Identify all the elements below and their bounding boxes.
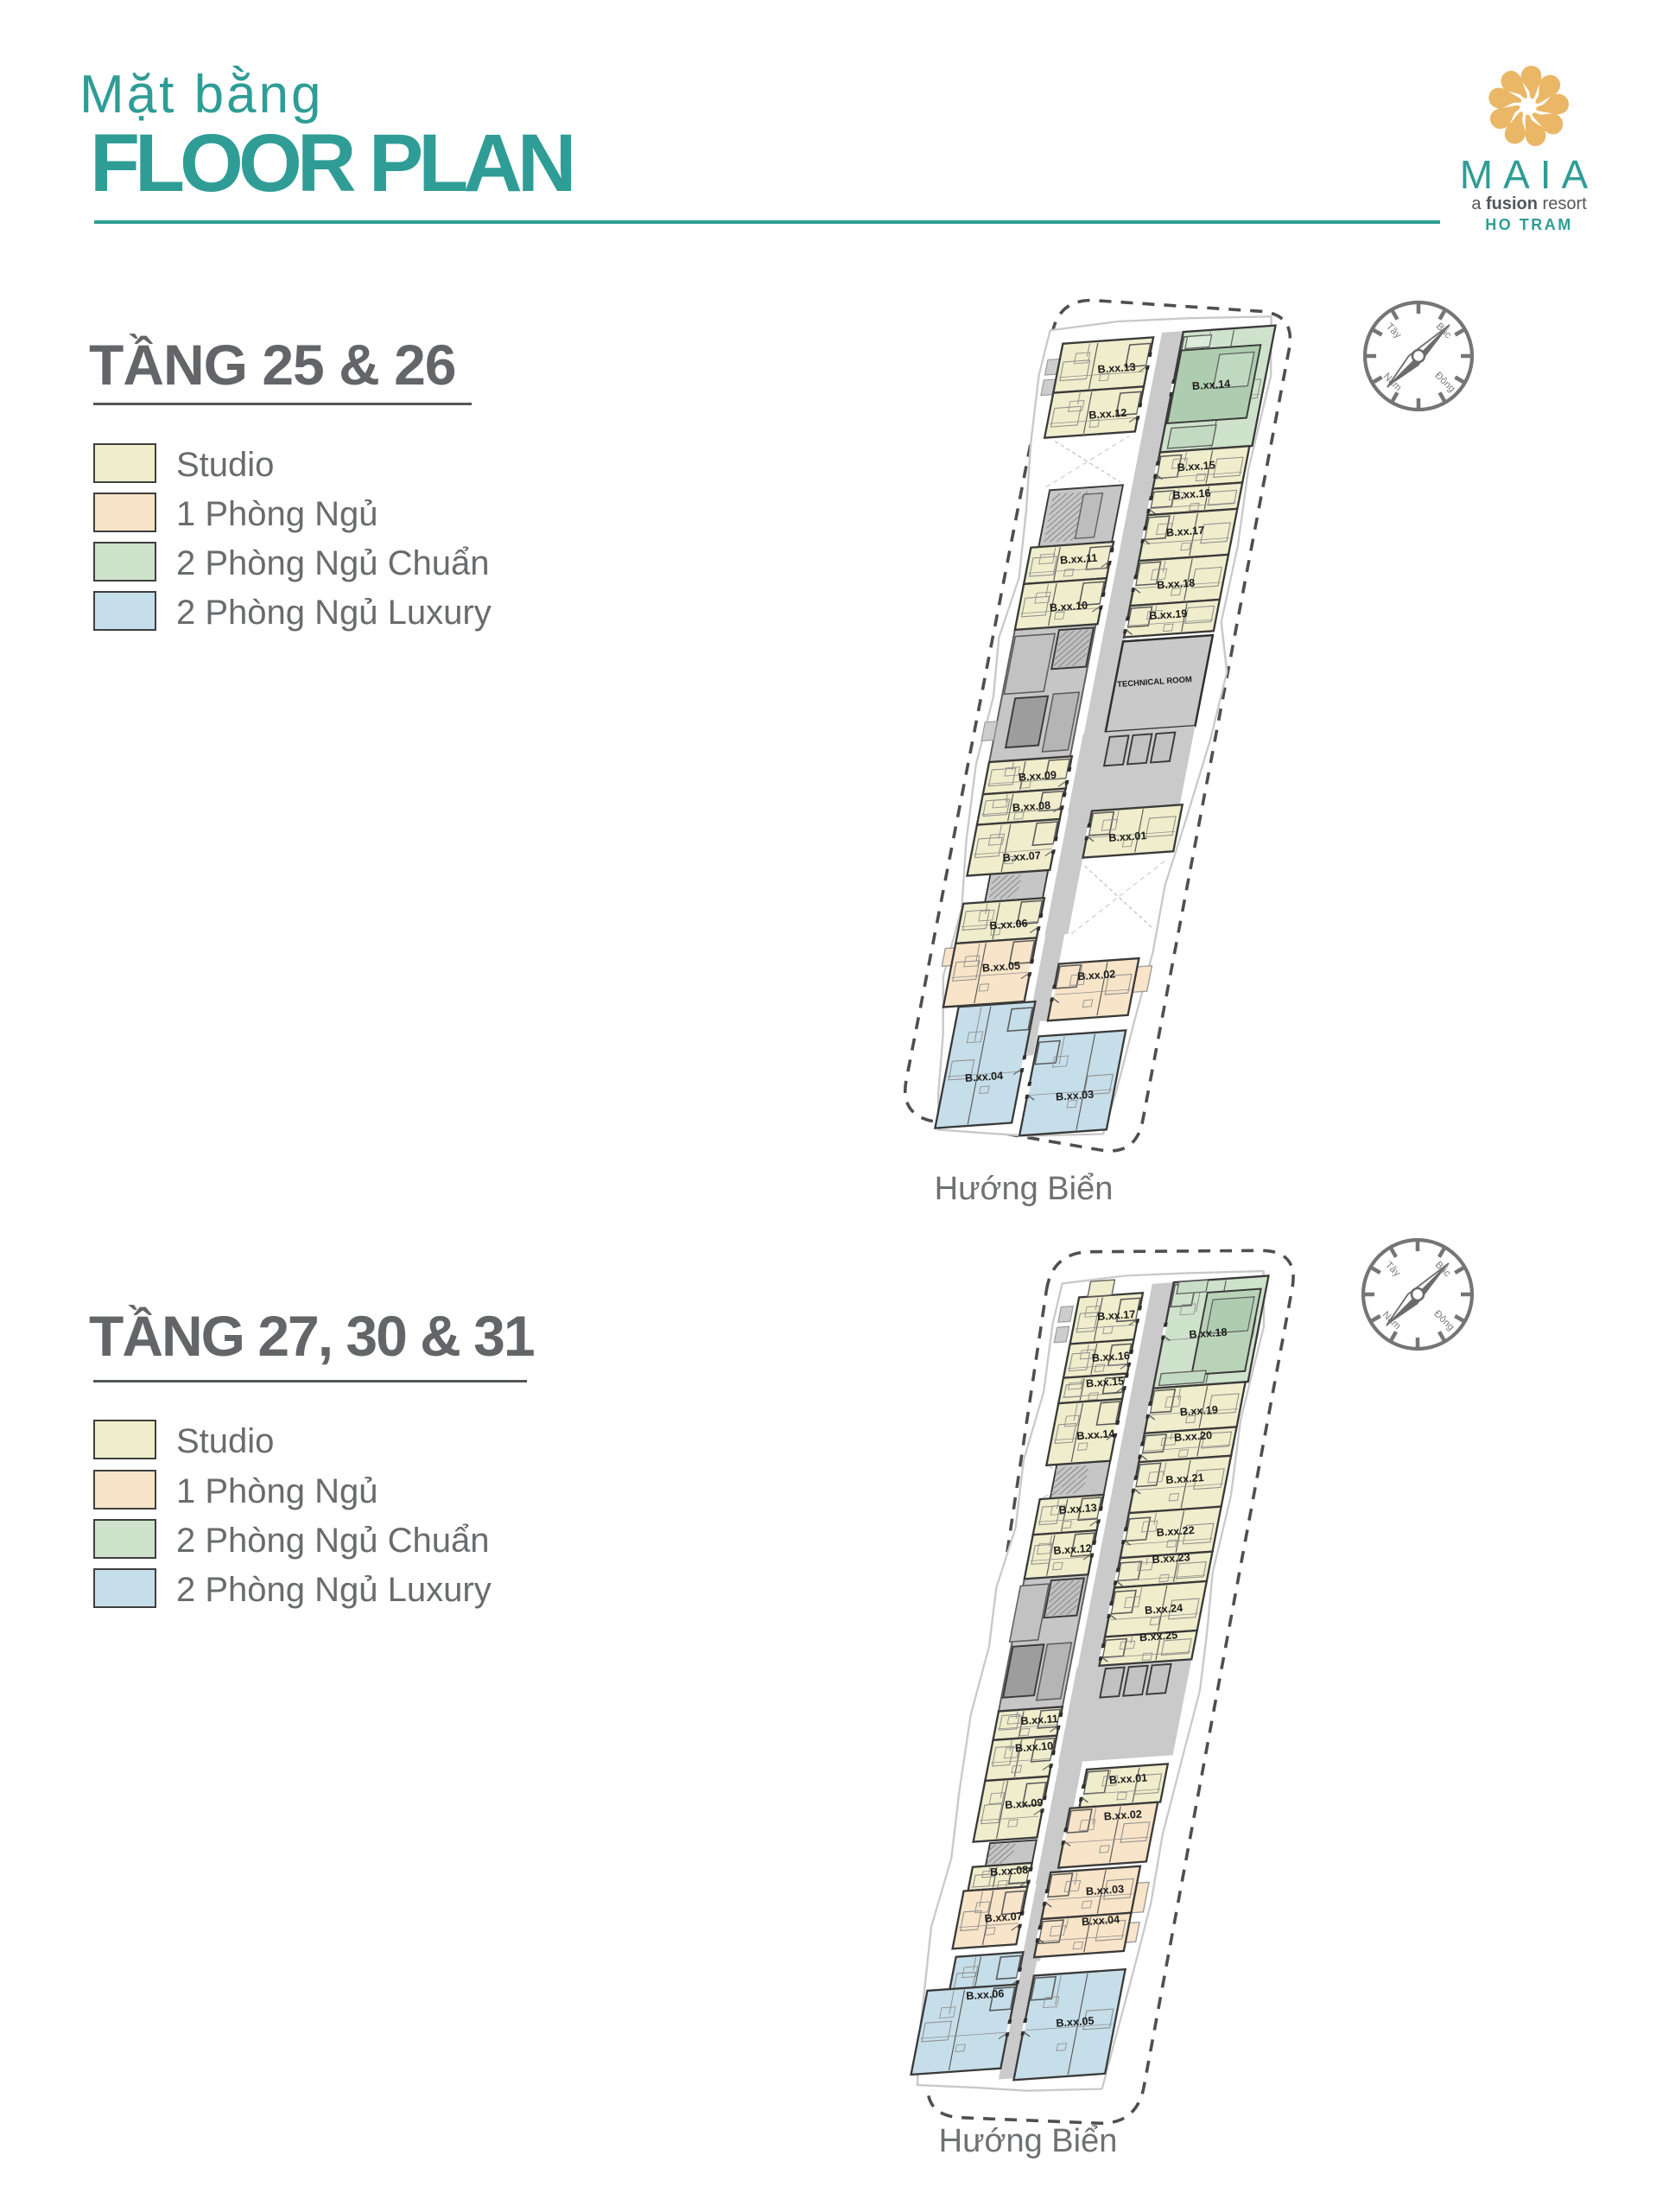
svg-text:Tây: Tây [1383, 1260, 1402, 1279]
svg-text:Đông: Đông [1431, 1308, 1456, 1332]
svg-text:Tây: Tây [1384, 321, 1403, 340]
svg-text:MAIA: MAIA [1460, 152, 1598, 197]
svg-text:Đông: Đông [1432, 370, 1456, 394]
svg-text:HO TRAM: HO TRAM [1485, 216, 1573, 233]
svg-text:a fusion resort: a fusion resort [1471, 194, 1587, 213]
